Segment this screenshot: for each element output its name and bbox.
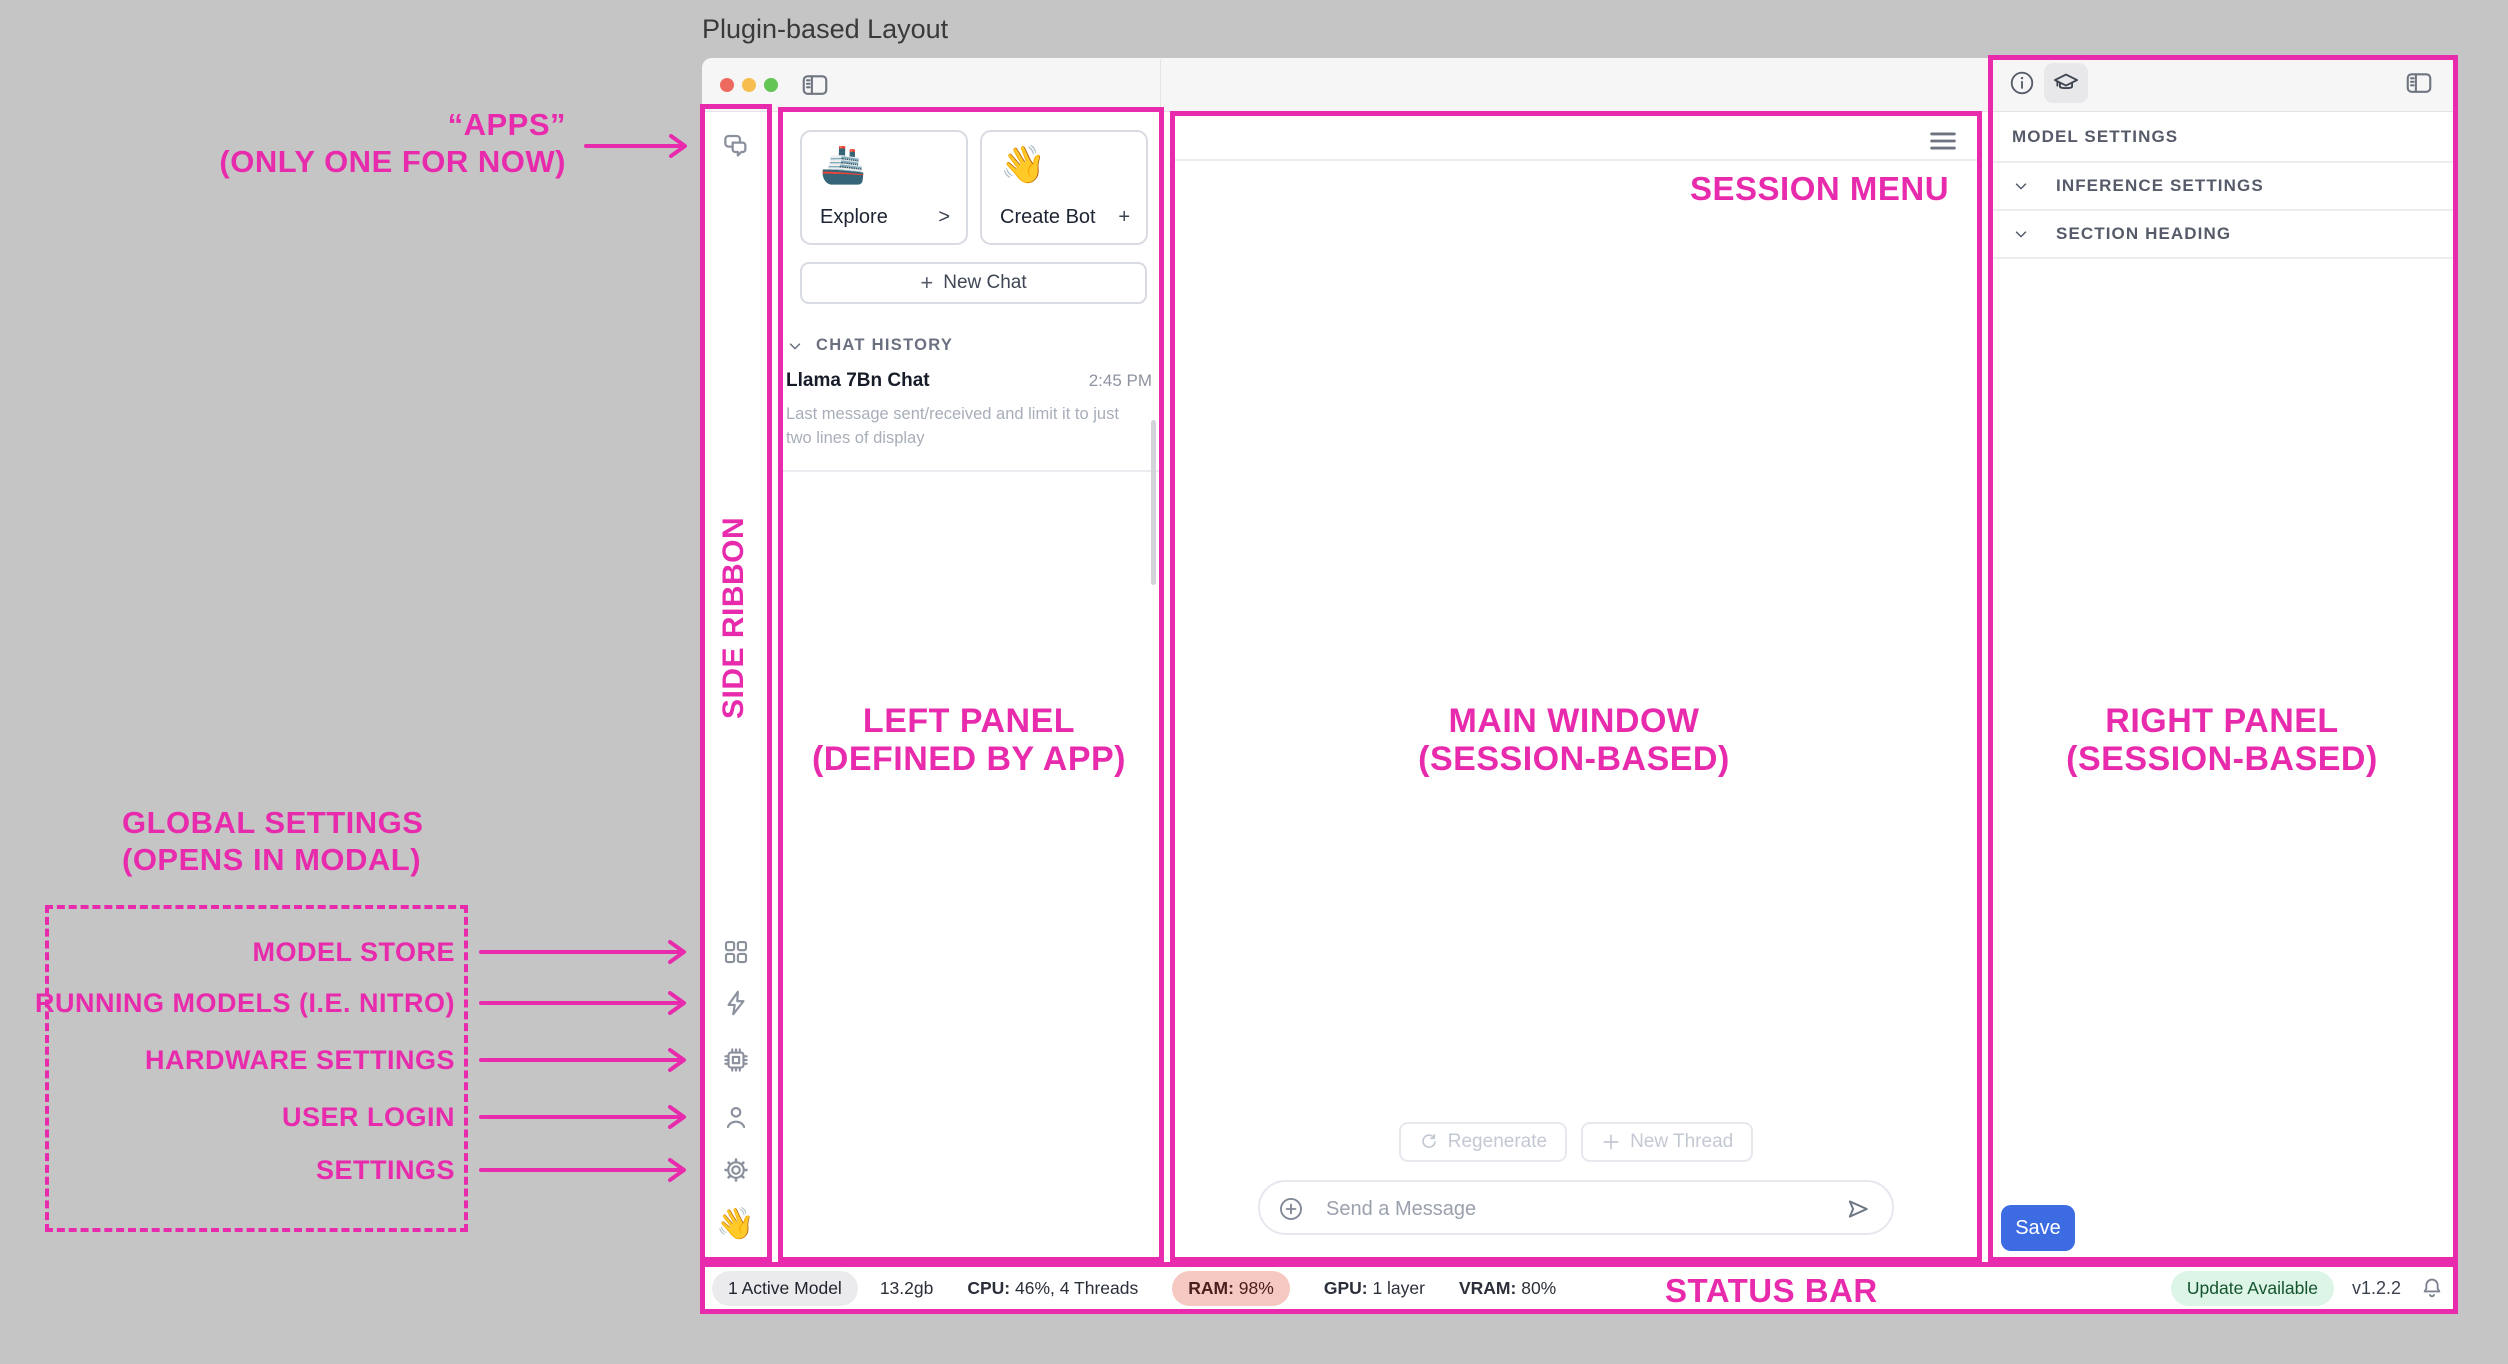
plus-icon: + (920, 270, 933, 296)
model-store-grid-icon[interactable] (721, 937, 751, 967)
chat-history-item[interactable]: Llama 7Bn Chat 2:45 PM (786, 370, 1152, 392)
chevron-down-icon (2012, 225, 2030, 243)
hamburger-menu-icon[interactable] (1926, 126, 1960, 156)
ram-stat-badge: RAM: 98% (1172, 1271, 1290, 1306)
send-icon[interactable] (1844, 1195, 1872, 1223)
main-header-divider (1175, 159, 1977, 161)
explore-card-label: Explore (820, 206, 888, 229)
app-version: v1.2.2 (2352, 1278, 2401, 1299)
page-title: Plugin-based Layout (702, 14, 948, 45)
annotation-settings: SETTINGS (0, 1154, 455, 1186)
status-bar-right: Update Available v1.2.2 (2171, 1267, 2445, 1309)
model-settings-heading: MODEL SETTINGS (2012, 127, 2178, 147)
hardware-chip-icon[interactable] (721, 1045, 751, 1075)
chat-preview: Last message sent/received and limit it … (786, 402, 1148, 450)
create-bot-card[interactable]: 👋 Create Bot + (980, 130, 1148, 245)
chat-timestamp: 2:45 PM (1089, 371, 1152, 391)
section-label: INFERENCE SETTINGS (2056, 176, 2264, 196)
canvas: Plugin-based Layout (0, 0, 2508, 1364)
chat-title: Llama 7Bn Chat (786, 370, 930, 392)
user-icon[interactable] (721, 1102, 751, 1132)
new-chat-label: New Chat (943, 272, 1026, 294)
annotation-model-store: MODEL STORE (0, 936, 455, 968)
annotation-apps: “APPS” (ONLY ONE FOR NOW) (166, 106, 566, 180)
new-chat-button[interactable]: + New Chat (800, 262, 1147, 304)
annotation-global-settings: GLOBAL SETTINGS (OPENS IN MODAL) (122, 804, 423, 878)
section-divider (1993, 209, 2453, 211)
minimize-window-button[interactable] (742, 78, 756, 92)
create-bot-card-plus: + (1118, 206, 1130, 229)
section-label: SECTION HEADING (2056, 224, 2231, 244)
inference-settings-section[interactable]: INFERENCE SETTINGS (2012, 176, 2264, 196)
graduation-cap-icon (2052, 69, 2080, 97)
traffic-lights (720, 78, 778, 92)
close-window-button[interactable] (720, 78, 734, 92)
attach-plus-circle-icon[interactable] (1277, 1195, 1305, 1223)
section-heading-section[interactable]: SECTION HEADING (2012, 224, 2231, 244)
annotation-running-models: RUNNING MODELS (I.E. NITRO) (0, 987, 455, 1019)
model-settings-tab[interactable] (2044, 63, 2088, 103)
thread-actions: Regenerate New Thread (1175, 1122, 1977, 1162)
bell-icon[interactable] (2419, 1275, 2445, 1301)
vram-stat: VRAM: 80% (1459, 1278, 1556, 1299)
gpu-stat: GPU: 1 layer (1324, 1278, 1425, 1299)
running-models-lightning-icon[interactable] (721, 988, 751, 1018)
wave-emoji-icon[interactable]: 👋 (716, 1206, 755, 1242)
left-panel-scrollbar[interactable] (1151, 420, 1156, 585)
annotation-arrow (478, 1102, 692, 1132)
save-button[interactable]: Save (2001, 1205, 2075, 1251)
active-model-badge: 1 Active Model (712, 1271, 858, 1306)
annotation-hardware-settings: HARDWARE SETTINGS (0, 1044, 455, 1076)
annotation-user-login: USER LOGIN (0, 1101, 455, 1133)
annotation-arrow (478, 1155, 692, 1185)
explore-card-chevron: > (938, 206, 950, 229)
regenerate-button[interactable]: Regenerate (1399, 1122, 1567, 1162)
plus-icon (1601, 1132, 1621, 1152)
explore-card[interactable]: 🚢 Explore > (800, 130, 968, 245)
message-composer (1258, 1180, 1894, 1235)
section-divider (1993, 257, 2453, 259)
ship-emoji-icon: 🚢 (820, 144, 866, 186)
update-available-badge[interactable]: Update Available (2171, 1271, 2334, 1306)
new-thread-label: New Thread (1630, 1131, 1733, 1153)
annotation-arrow (583, 131, 693, 161)
section-divider (1993, 161, 2453, 163)
info-icon[interactable] (2008, 69, 2036, 97)
new-thread-button[interactable]: New Thread (1581, 1122, 1753, 1162)
annotation-arrow (478, 1045, 692, 1075)
refresh-icon (1419, 1132, 1439, 1152)
chat-history-label: CHAT HISTORY (816, 336, 953, 355)
memory-usage: 13.2gb (880, 1278, 934, 1299)
message-input[interactable] (1324, 1186, 1798, 1232)
chat-bubbles-icon[interactable] (720, 130, 752, 162)
status-bar-left: 1 Active Model 13.2gb CPU: 46%, 4 Thread… (712, 1267, 1556, 1309)
chevron-down-icon (786, 337, 804, 355)
regenerate-label: Regenerate (1448, 1131, 1547, 1153)
chevron-down-icon (2012, 177, 2030, 195)
right-sidebar-toggle-icon[interactable] (2404, 68, 2434, 98)
create-bot-card-label: Create Bot (1000, 206, 1096, 229)
annotation-arrow (478, 988, 692, 1018)
gear-icon[interactable] (721, 1155, 751, 1185)
cpu-stat: CPU: 46%, 4 Threads (967, 1278, 1138, 1299)
sidebar-toggle-icon[interactable] (800, 70, 830, 100)
list-divider (781, 470, 1161, 472)
wave-emoji-icon: 👋 (1000, 144, 1046, 186)
global-settings-group-outline (45, 905, 468, 1232)
annotation-arrow (478, 937, 692, 967)
zoom-window-button[interactable] (764, 78, 778, 92)
titlebar-divider (1160, 59, 1161, 111)
chat-history-header[interactable]: CHAT HISTORY (786, 336, 953, 355)
